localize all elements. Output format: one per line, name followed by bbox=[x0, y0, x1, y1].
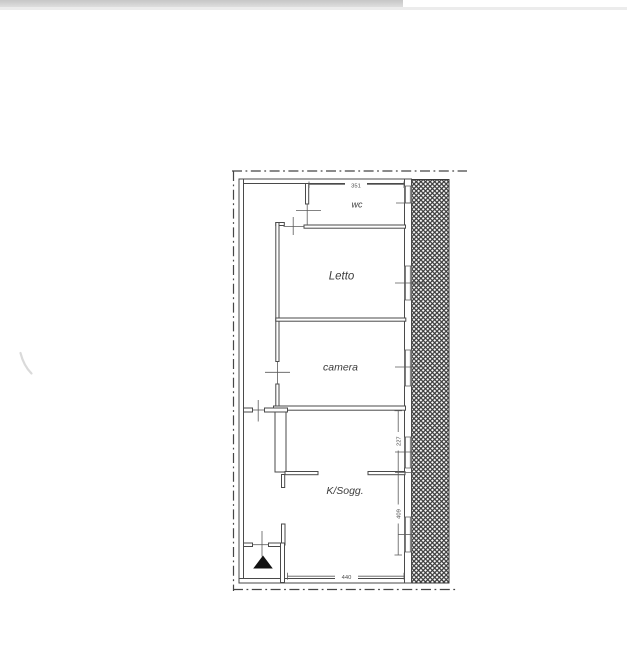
adjacent-building-hatch bbox=[412, 180, 450, 584]
wall-entry-right bbox=[265, 408, 288, 412]
door-entrance bbox=[253, 531, 269, 557]
room-label-ksogg: K/Sogg. bbox=[326, 485, 363, 497]
floor-plan-drawing: 351 227 409 440 wc Letto camera K/Sogg. bbox=[0, 0, 627, 665]
door-wc bbox=[296, 204, 321, 225]
wall-letto-left bbox=[276, 223, 279, 362]
wall-left bbox=[239, 179, 244, 583]
wall-vestibule-top-left bbox=[244, 543, 253, 547]
room-label-camera: camera bbox=[323, 362, 358, 374]
wall-bottom bbox=[239, 579, 412, 584]
door-camera bbox=[265, 362, 290, 385]
walls bbox=[239, 179, 412, 583]
room-label-wc: wc bbox=[352, 200, 363, 210]
room-label-letto: Letto bbox=[329, 271, 355, 283]
watermark-mark bbox=[21, 353, 32, 374]
wall-camera-left-lower bbox=[276, 384, 279, 408]
wall-ksogg-left bbox=[275, 412, 286, 472]
dimension-bottom-value: 440 bbox=[342, 575, 352, 581]
page: 351 227 409 440 wc Letto camera K/Sogg. bbox=[0, 0, 627, 665]
dimension-right-upper-value: 227 bbox=[396, 436, 402, 446]
wall-wc-left bbox=[306, 184, 309, 205]
dimension-top-value: 351 bbox=[351, 183, 361, 189]
doors bbox=[253, 204, 322, 557]
door-hall bbox=[253, 400, 265, 422]
wall-entry-left bbox=[244, 408, 253, 412]
dimension-right-lower-value: 409 bbox=[396, 509, 402, 519]
wall-ksogg-stub-left bbox=[285, 472, 318, 475]
wall-wc-bottom bbox=[304, 225, 406, 228]
wall-letto-camera-divider bbox=[276, 318, 406, 321]
wall-vestibule-right bbox=[281, 543, 285, 583]
wall-vestibule-top-right bbox=[269, 543, 283, 547]
door-letto bbox=[284, 217, 305, 235]
wall-ksogg-left-lower bbox=[282, 524, 286, 545]
wall-camera-bottom bbox=[274, 406, 406, 410]
entrance-triangle-icon bbox=[253, 556, 273, 569]
dimension-right-upper: 227 bbox=[395, 411, 403, 473]
wall-ksogg-stub-right bbox=[368, 472, 405, 475]
dimension-right-lower: 409 bbox=[395, 473, 403, 556]
wall-ksogg-jamb bbox=[282, 475, 285, 488]
wall-top bbox=[239, 179, 412, 184]
